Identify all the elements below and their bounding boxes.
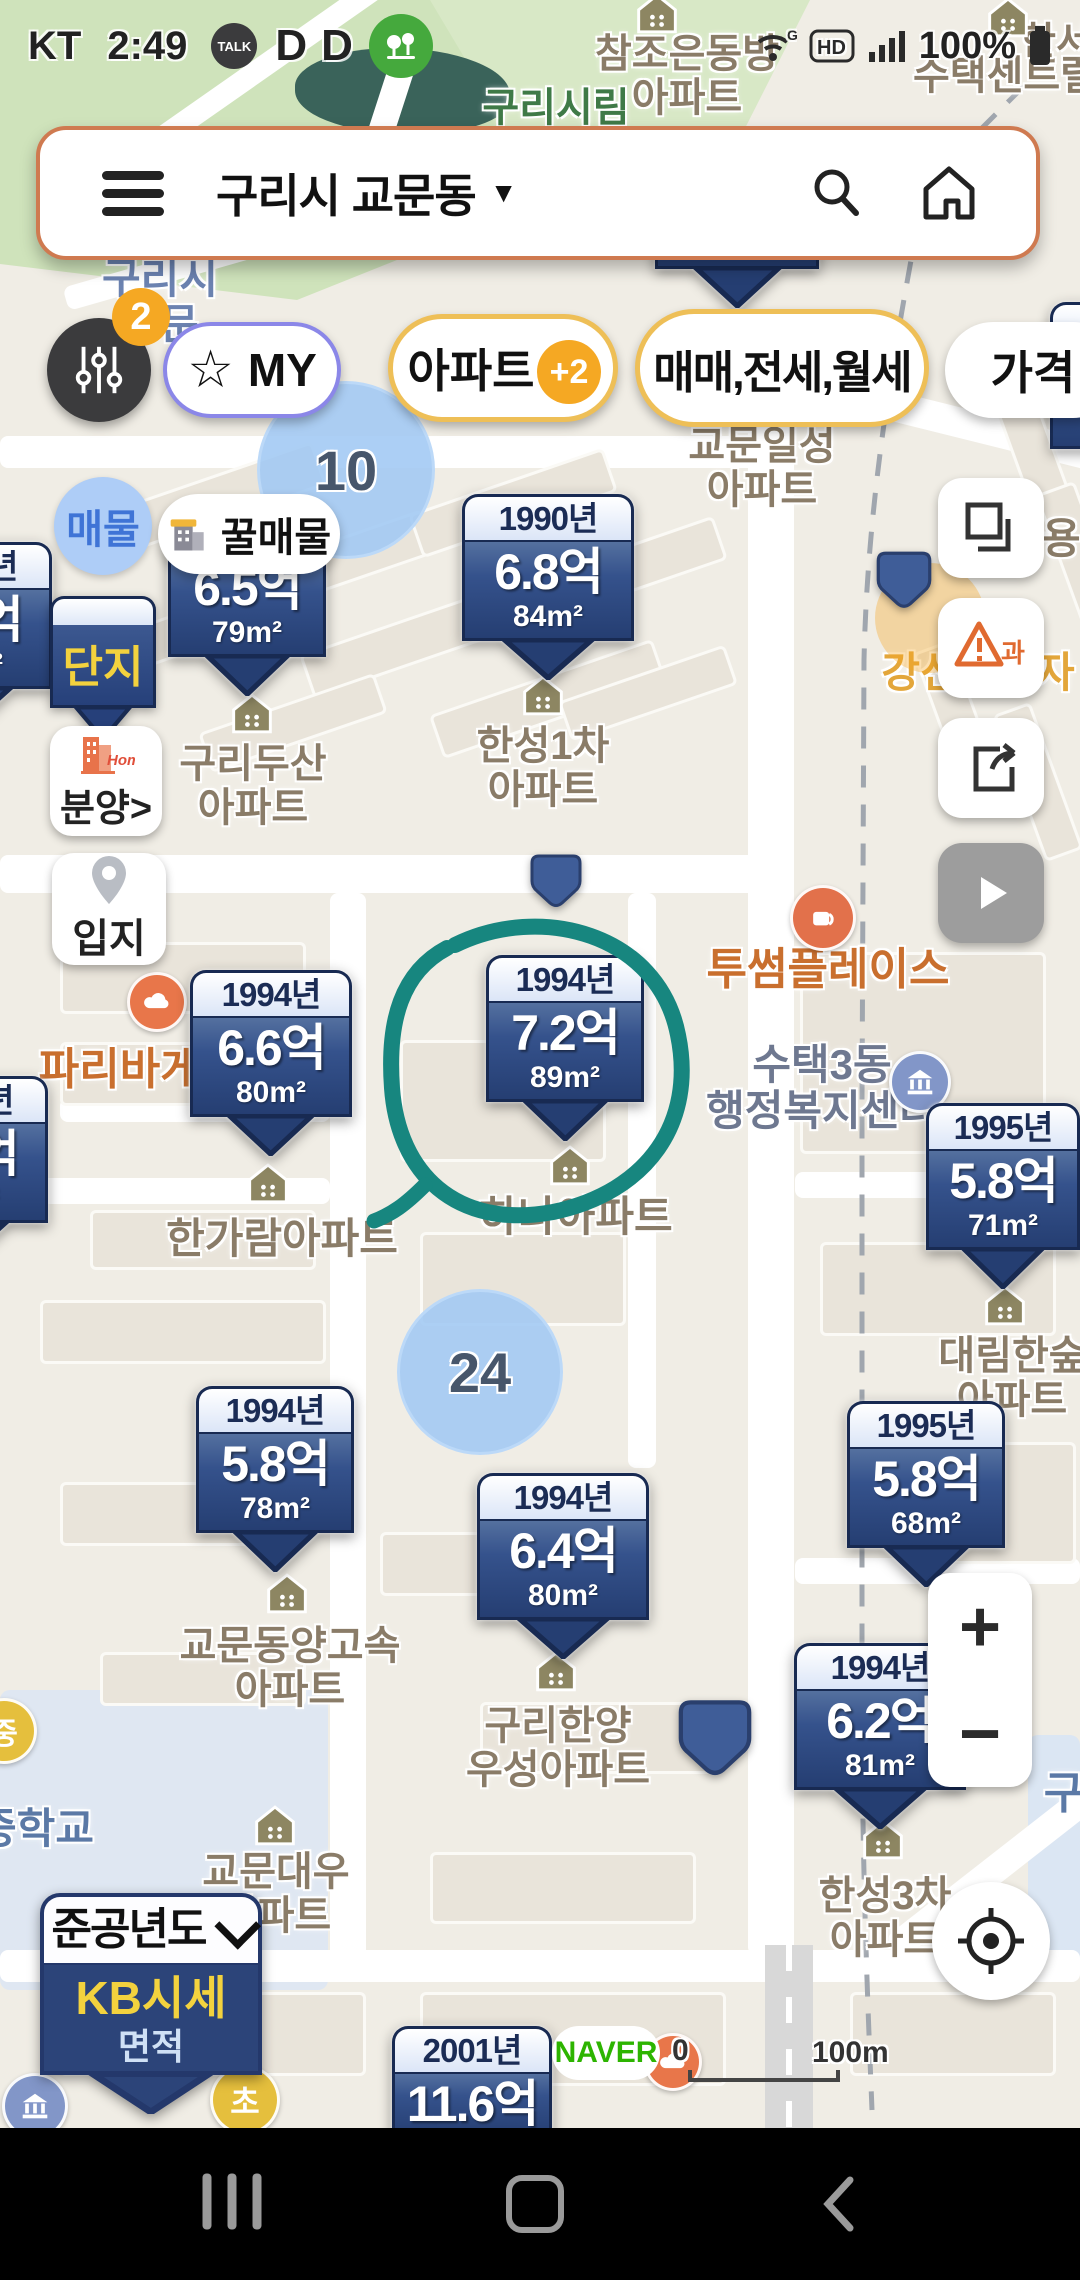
legend-primary: KB시세	[44, 1971, 258, 2025]
map-place-label: 투썸플레이스	[707, 946, 950, 994]
extra-count-badge: +2	[537, 340, 601, 404]
scale-end-label: 100m	[812, 2036, 889, 2070]
map-building-block	[430, 1852, 696, 1924]
play-icon	[969, 871, 1013, 915]
search-icon[interactable]	[806, 163, 866, 223]
sliders-icon	[70, 342, 128, 398]
my-favorites-button[interactable]: ☆ MY	[163, 322, 341, 418]
marker-year: 1995년	[926, 1103, 1080, 1151]
marker-price: 11.6억	[395, 2076, 549, 2128]
building-icon	[167, 512, 211, 556]
apartment-house-icon	[265, 1572, 309, 1621]
map-pin-icon	[86, 854, 132, 906]
listings-toggle-button[interactable]: 매물	[54, 477, 152, 575]
map-scale-bar	[688, 2070, 840, 2082]
legend-secondary: 면적	[44, 2025, 258, 2069]
price-marker[interactable]: 1994년5.8억78m²	[196, 1386, 354, 1572]
marker-year: 2001년	[392, 2026, 552, 2074]
home-nav-button[interactable]	[506, 2175, 564, 2233]
map-road	[748, 420, 794, 1955]
scale-start-label: 0	[672, 2034, 689, 2068]
price-filter[interactable]: 가격	[945, 322, 1080, 418]
map-place-label: 하나아파트	[479, 1194, 672, 1240]
map-place-label: 구리두산아파트	[179, 742, 326, 830]
map-place-label: 한성1차아파트	[477, 724, 610, 812]
complex-button[interactable]: 단지	[50, 596, 156, 741]
price-marker[interactable]: 1994년6.6억80m²	[190, 970, 352, 1156]
home-icon[interactable]	[918, 163, 980, 223]
marker-price: 6.1억	[0, 592, 49, 648]
home-nav-icon	[506, 2175, 564, 2233]
marker-area: 89m²	[489, 1061, 641, 1095]
star-icon: ☆	[187, 340, 234, 400]
app-notification-icon: D	[321, 21, 353, 71]
price-marker[interactable]: 1995년5.8억68m²	[847, 1401, 1005, 1587]
honey-listings-button[interactable]: 꿀매물	[158, 494, 340, 574]
collapsed-price-dot[interactable]	[530, 853, 582, 914]
marker-year: 1994년	[477, 1473, 649, 1521]
apartment-house-icon	[521, 674, 565, 723]
zoom-in-button[interactable]: +	[928, 1573, 1032, 1680]
marker-area: 79m²	[171, 616, 323, 650]
marker-area: 68m²	[850, 1507, 1002, 1541]
naver-logo: NAVER	[552, 2026, 660, 2080]
price-marker[interactable]: 1991년6.1억78m²	[0, 542, 52, 728]
share-icon	[962, 739, 1020, 797]
svg-text:Home: Home	[107, 752, 135, 769]
app-notification-icon: D	[275, 21, 307, 71]
crosshair-icon	[954, 1904, 1028, 1978]
zoom-controls: + −	[928, 1573, 1032, 1787]
chevron-down-icon	[215, 1902, 262, 1949]
marker-area: 80m²	[480, 1579, 646, 1613]
wifi-icon: G	[753, 26, 797, 66]
chevron-down-icon: ▼	[490, 177, 518, 209]
marker-price: 6.6억	[193, 1020, 349, 1076]
marker-price: 5.9억	[0, 1126, 45, 1182]
map-building-block	[40, 1300, 326, 1364]
status-bar: KT 2:49 TALK D D G HD 100%	[0, 0, 1080, 92]
location-analysis-button[interactable]: 입지	[52, 853, 166, 965]
filter-count-badge: 2	[112, 288, 170, 346]
signal-strength-icon	[867, 28, 907, 64]
property-type-filter[interactable]: 아파트 +2	[388, 314, 618, 422]
android-navigation-bar	[0, 2128, 1080, 2280]
marker-year: 1991년	[0, 542, 52, 590]
svg-text:과: 과	[1001, 638, 1025, 668]
share-button[interactable]	[938, 718, 1044, 818]
deal-type-filter[interactable]: 매매,전세,월세	[635, 309, 929, 427]
price-marker[interactable]: 1994년5.9억80m²	[0, 1076, 48, 1262]
map-place-label: 교문동양고속아파트	[180, 1624, 401, 1712]
search-bar[interactable]: 구리시 교문동 ▼	[36, 126, 1040, 260]
presale-button[interactable]: Home 분양>	[50, 726, 162, 836]
apartment-house-icon	[230, 692, 274, 741]
compare-maps-button[interactable]	[938, 478, 1044, 578]
cloud-poi-icon	[127, 972, 187, 1032]
marker-price: 7.2억	[489, 1005, 641, 1061]
overpriced-alert-button[interactable]: 과	[938, 598, 1044, 698]
apartment-house-icon	[983, 1284, 1027, 1333]
marker-area: 80m²	[193, 1076, 349, 1110]
map-place-label: 한가람아파트	[166, 1216, 398, 1262]
battery-percentage: 100%	[919, 25, 1016, 68]
collapsed-price-dot[interactable]	[876, 550, 932, 615]
apartment-house-icon	[548, 1144, 592, 1193]
legend-mode-marker[interactable]: 준공년도 KB시세 면적	[40, 1893, 262, 2114]
apartment-house-icon	[253, 1804, 297, 1853]
marker-year: 1994년	[0, 1076, 48, 1124]
marker-area: 71m²	[929, 1209, 1077, 1243]
hd-voice-icon: HD	[809, 29, 855, 63]
marker-price: 5.8억	[850, 1451, 1002, 1507]
map-place-label: 중학교	[0, 1806, 94, 1852]
recents-button[interactable]	[195, 2174, 270, 2235]
map-place-label: 구	[1044, 1770, 1080, 1818]
marker-year: 1994년	[196, 1386, 354, 1434]
marker-area: 78m²	[0, 648, 49, 682]
marker-price: 6.8억	[465, 544, 631, 600]
zoom-out-button[interactable]: −	[928, 1680, 1032, 1787]
marker-year: 1994년	[486, 955, 644, 1003]
map-app-notification-icon	[369, 14, 433, 78]
svg-text:G: G	[787, 27, 797, 43]
clock: 2:49	[107, 24, 187, 69]
carrier-label: KT	[28, 24, 81, 69]
marker-price: 5.8억	[199, 1436, 351, 1492]
marker-year: 1994년	[190, 970, 352, 1018]
marker-area: 80m²	[0, 1182, 45, 1216]
map-place-label: 구리한양우성아파트	[466, 1704, 650, 1792]
marker-price: 5.8억	[929, 1153, 1077, 1209]
marker-area: 78m²	[199, 1492, 351, 1526]
battery-icon	[1028, 26, 1052, 66]
map-gray-road	[765, 1945, 813, 2128]
marker-price: 6.4억	[480, 1523, 646, 1579]
menu-icon[interactable]	[102, 162, 164, 225]
marker-year: 1995년	[847, 1401, 1005, 1449]
back-button[interactable]	[818, 2172, 858, 2236]
coffee-poi-icon	[790, 885, 856, 951]
map-place-label: 한성3차아파트	[819, 1874, 952, 1962]
marker-area: 84m²	[465, 600, 631, 634]
apartment-house-icon	[246, 1162, 290, 1211]
region-selector[interactable]: 구리시 교문동	[216, 160, 476, 226]
map-place-label: 교문일성아파트	[688, 424, 835, 512]
current-location-button[interactable]	[932, 1882, 1050, 2000]
price-marker[interactable]: 1994년7.2억89m²	[486, 955, 644, 1141]
legend-dropdown[interactable]: 준공년도	[40, 1893, 262, 1965]
listing-cluster[interactable]: 24	[397, 1289, 563, 1455]
presale-home-icon: Home	[77, 731, 135, 775]
price-marker[interactable]: 1995년5.8억71m²	[926, 1103, 1080, 1289]
app-screen: 구리시림참조은동방아파트수택센트럴한서구리시교문교문일성아파트쌍용강신프라자투썸…	[0, 0, 1080, 2280]
overlapping-windows-icon	[962, 499, 1020, 557]
price-marker[interactable]: 1994년6.4억80m²	[477, 1473, 649, 1659]
collapsed-price-dot[interactable]	[678, 1698, 752, 1783]
svg-text:HD: HD	[817, 37, 846, 59]
price-marker[interactable]: 1990년6.8억84m²	[462, 494, 634, 680]
warning-triangle-icon: 과	[953, 618, 1029, 678]
video-button[interactable]	[938, 843, 1044, 943]
price-marker[interactable]: 2001년11.6억	[392, 2026, 552, 2128]
marker-year: 1990년	[462, 494, 634, 542]
kakaotalk-notification-icon: TALK	[211, 23, 257, 69]
